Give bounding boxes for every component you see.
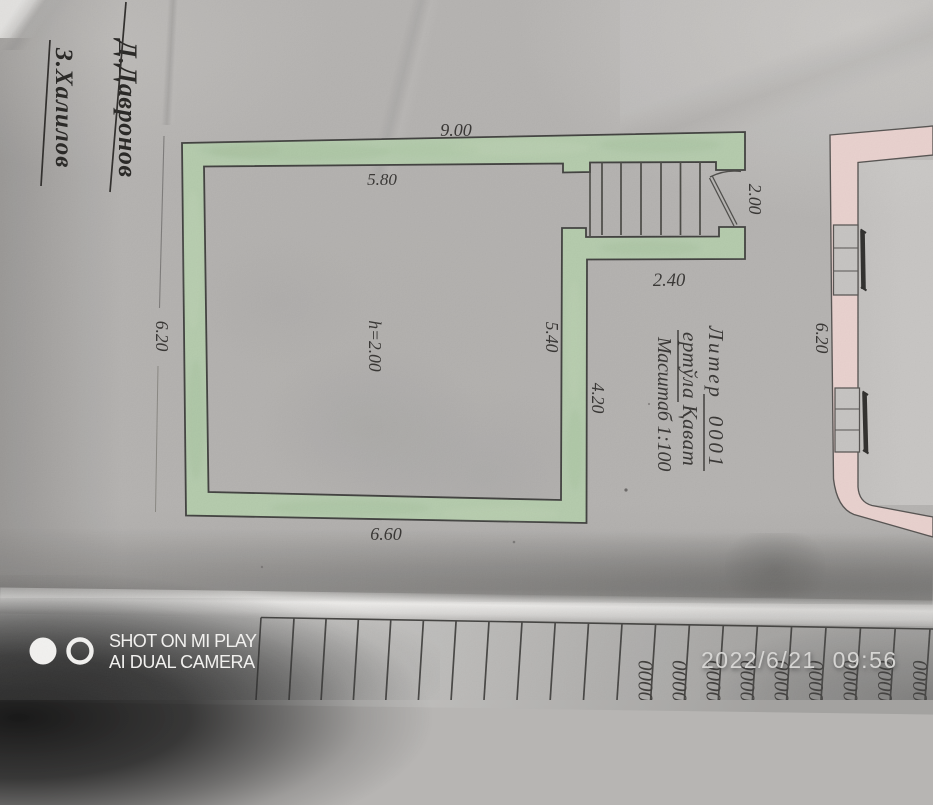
svg-text:AI DUAL CAMERA: AI DUAL CAMERA [109,652,255,672]
svg-text:SHOT ON MI PLAY: SHOT ON MI PLAY [109,631,257,651]
